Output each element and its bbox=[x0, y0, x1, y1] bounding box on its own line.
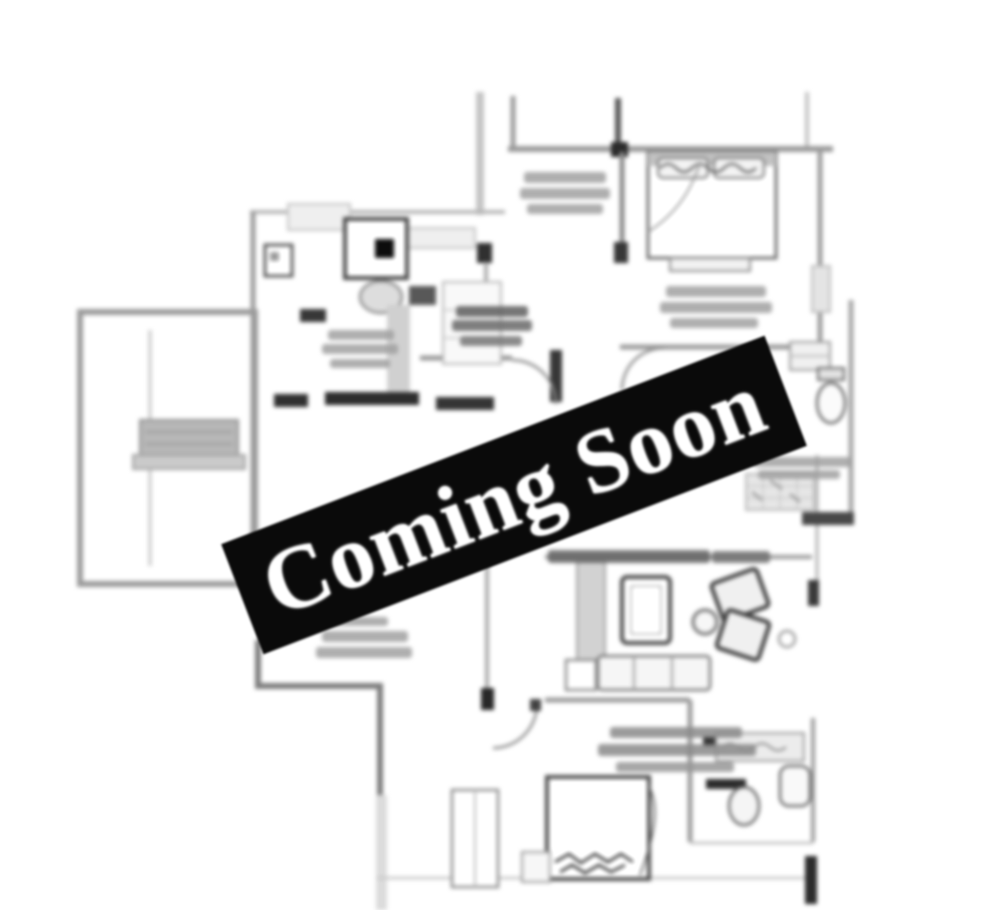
bed-bottom-center bbox=[452, 777, 655, 887]
living-room-furniture bbox=[566, 562, 795, 690]
screenshot-root: Coming Soon bbox=[0, 0, 1000, 910]
bed-top-right bbox=[648, 152, 776, 271]
balcony-bench bbox=[133, 420, 245, 469]
